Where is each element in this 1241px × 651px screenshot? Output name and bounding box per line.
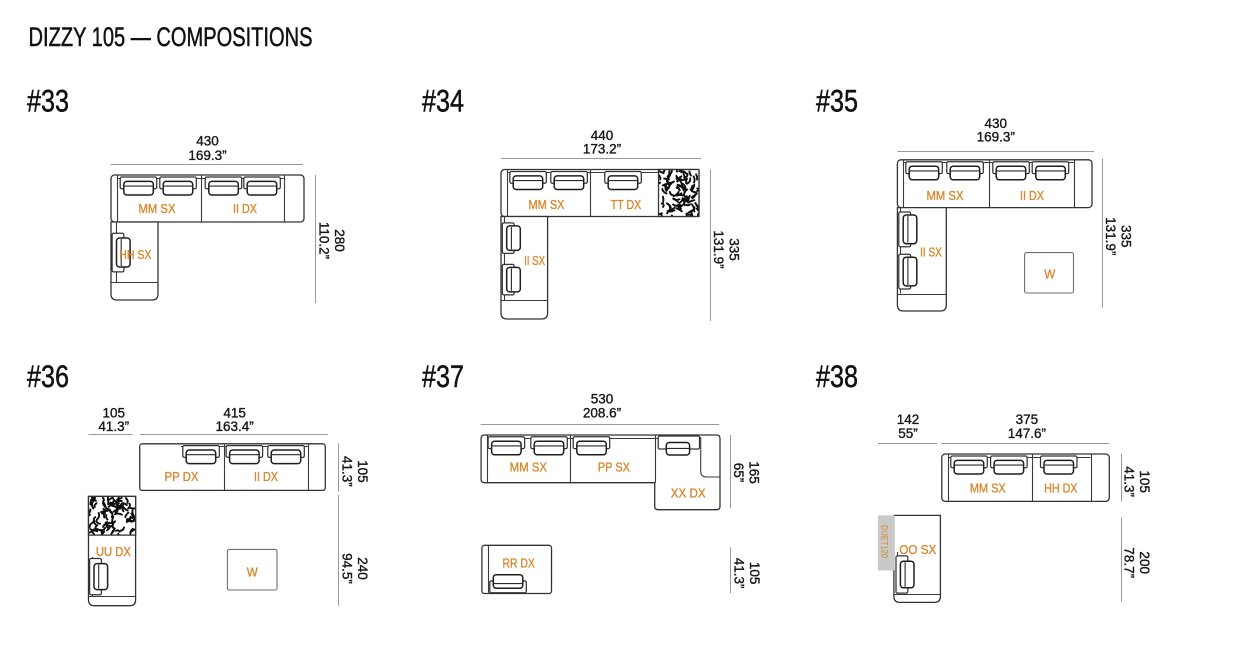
svg-text:208.6”: 208.6” — [583, 406, 621, 421]
svg-text:41.3”: 41.3” — [340, 456, 355, 487]
svg-text:II DX: II DX — [254, 470, 279, 484]
svg-text:DUET120: DUET120 — [880, 525, 890, 558]
svg-text:#33: #33 — [27, 83, 69, 119]
svg-text:W: W — [1044, 267, 1055, 281]
svg-text:78.7”: 78.7” — [1122, 547, 1137, 578]
svg-text:41.3”: 41.3” — [1122, 466, 1137, 497]
svg-text:PP SX: PP SX — [598, 461, 631, 475]
svg-text:MM SX: MM SX — [529, 198, 566, 212]
svg-text:DIZZY 105 — COMPOSITIONS: DIZZY 105 — COMPOSITIONS — [29, 22, 313, 52]
svg-text:II SX: II SX — [920, 246, 942, 260]
svg-text:II SX: II SX — [524, 254, 546, 268]
svg-text:105: 105 — [355, 460, 370, 483]
svg-text:173.2”: 173.2” — [583, 142, 621, 157]
svg-text:65”: 65” — [731, 463, 746, 483]
svg-text:OO SX: OO SX — [899, 543, 937, 557]
svg-text:105: 105 — [1137, 470, 1152, 493]
svg-text:110.2”: 110.2” — [316, 222, 331, 259]
svg-text:335: 335 — [727, 238, 742, 261]
svg-text:142: 142 — [897, 412, 920, 427]
svg-text:#34: #34 — [422, 83, 464, 119]
svg-text:169.3”: 169.3” — [188, 148, 226, 163]
svg-text:280: 280 — [332, 229, 347, 252]
svg-text:131.9”: 131.9” — [1103, 217, 1118, 255]
svg-text:169.3”: 169.3” — [977, 130, 1015, 145]
svg-text:MM SX: MM SX — [927, 189, 965, 203]
svg-text:240: 240 — [355, 557, 370, 580]
svg-text:41.3”: 41.3” — [98, 419, 129, 434]
svg-text:#36: #36 — [27, 358, 69, 394]
svg-text:MM SX: MM SX — [510, 461, 548, 475]
svg-text:165: 165 — [747, 461, 762, 484]
svg-text:147.6”: 147.6” — [1008, 426, 1046, 441]
svg-text:PP DX: PP DX — [165, 470, 200, 484]
svg-text:41.3”: 41.3” — [732, 558, 747, 589]
svg-text:131.9”: 131.9” — [711, 230, 726, 268]
svg-text:TT DX: TT DX — [611, 198, 642, 212]
svg-text:RR DX: RR DX — [503, 557, 536, 571]
svg-text:375: 375 — [1016, 412, 1039, 427]
svg-text:55”: 55” — [898, 426, 918, 441]
svg-text:#38: #38 — [816, 358, 858, 394]
svg-text:335: 335 — [1118, 225, 1133, 248]
svg-text:HH DX: HH DX — [1044, 482, 1078, 496]
svg-text:105: 105 — [747, 562, 762, 585]
svg-text:430: 430 — [196, 134, 219, 149]
svg-text:UU DX: UU DX — [96, 545, 132, 559]
svg-text:#35: #35 — [816, 83, 858, 119]
svg-text:530: 530 — [591, 392, 614, 407]
svg-text:XX DX: XX DX — [671, 487, 706, 501]
svg-text:163.4”: 163.4” — [215, 419, 253, 434]
svg-text:W: W — [247, 566, 258, 580]
svg-text:200: 200 — [1137, 551, 1152, 574]
svg-text:HH SX: HH SX — [119, 248, 152, 262]
svg-text:94.5”: 94.5” — [340, 553, 355, 584]
svg-text:MM SX: MM SX — [139, 202, 177, 216]
svg-text:#37: #37 — [422, 358, 464, 394]
svg-text:II DX: II DX — [1020, 189, 1045, 203]
svg-text:MM SX: MM SX — [970, 482, 1006, 496]
svg-text:II DX: II DX — [233, 202, 258, 216]
